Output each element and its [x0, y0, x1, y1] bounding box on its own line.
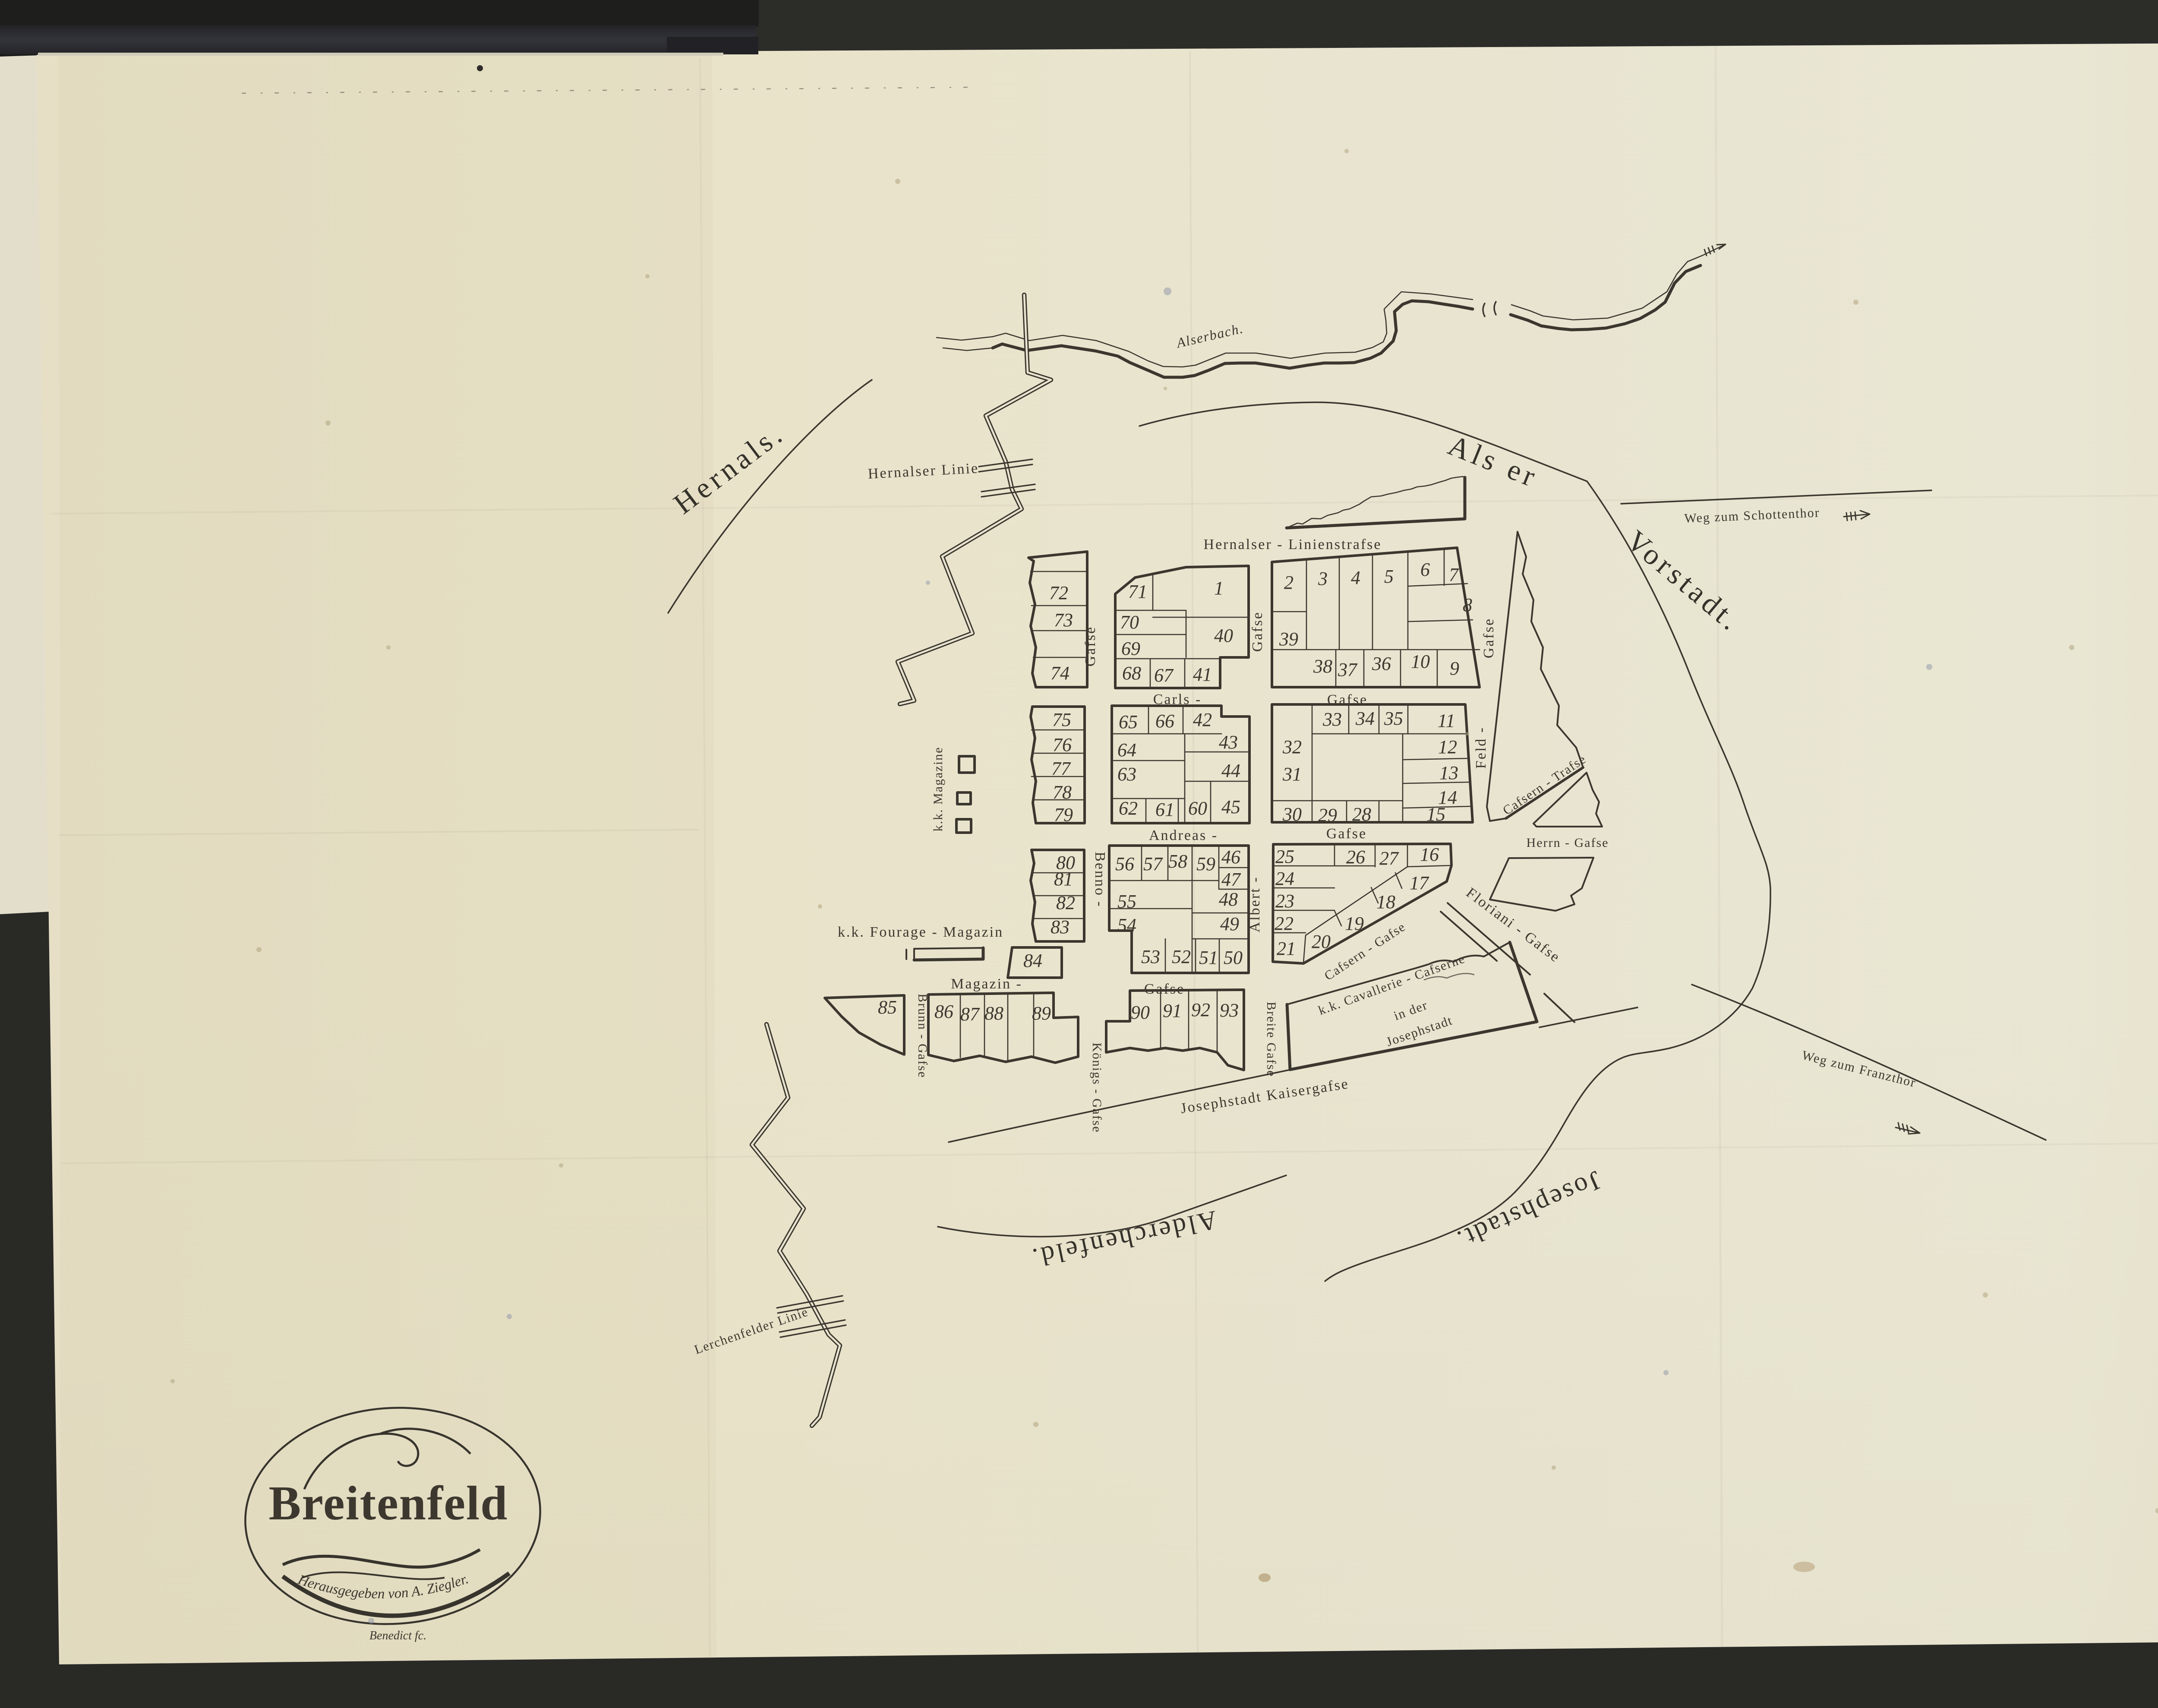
- svg-text:Carls -: Carls -: [1153, 691, 1202, 707]
- svg-text:52: 52: [1172, 946, 1191, 967]
- svg-text:Herrn - Gafse: Herrn - Gafse: [1527, 836, 1609, 850]
- svg-text:Hernalser - Linienstrafse: Hernalser - Linienstrafse: [1204, 537, 1382, 552]
- svg-text:6: 6: [1420, 559, 1430, 580]
- svg-text:54: 54: [1117, 915, 1136, 936]
- svg-text:78: 78: [1053, 782, 1072, 803]
- svg-text:61: 61: [1155, 799, 1174, 820]
- svg-text:58: 58: [1168, 851, 1187, 872]
- svg-text:79: 79: [1054, 804, 1073, 825]
- svg-text:56: 56: [1115, 853, 1134, 875]
- svg-text:17: 17: [1410, 872, 1429, 893]
- svg-text:53: 53: [1141, 946, 1160, 967]
- svg-text:18: 18: [1376, 891, 1395, 912]
- svg-text:41: 41: [1193, 664, 1212, 685]
- svg-text:3: 3: [1318, 568, 1328, 589]
- svg-text:32: 32: [1282, 736, 1302, 758]
- svg-text:Gafse: Gafse: [1144, 981, 1185, 997]
- svg-text:65: 65: [1119, 711, 1138, 732]
- svg-text:2: 2: [1284, 572, 1294, 593]
- svg-text:77: 77: [1051, 758, 1071, 779]
- svg-text:81: 81: [1054, 868, 1073, 890]
- svg-text:63: 63: [1117, 764, 1136, 785]
- svg-text:34: 34: [1355, 708, 1375, 729]
- svg-text:Gafse: Gafse: [1082, 626, 1098, 666]
- svg-text:Breitenfeld: Breitenfeld: [269, 1477, 508, 1530]
- svg-text:85: 85: [878, 997, 897, 1018]
- svg-text:39: 39: [1279, 628, 1298, 650]
- svg-text:44: 44: [1221, 760, 1240, 781]
- svg-text:86: 86: [934, 1001, 953, 1022]
- svg-text:7: 7: [1449, 564, 1459, 585]
- svg-text:Albert -: Albert -: [1247, 876, 1263, 933]
- svg-text:59: 59: [1196, 853, 1215, 875]
- svg-text:4: 4: [1351, 567, 1360, 588]
- svg-text:30: 30: [1282, 804, 1302, 825]
- svg-text:87: 87: [960, 1004, 980, 1025]
- svg-text:37: 37: [1338, 659, 1358, 680]
- svg-text:21: 21: [1277, 938, 1296, 959]
- svg-text:90: 90: [1131, 1002, 1150, 1023]
- svg-text:71: 71: [1128, 581, 1147, 602]
- svg-text:60: 60: [1188, 798, 1207, 819]
- svg-text:24: 24: [1275, 868, 1294, 889]
- svg-text:28: 28: [1352, 804, 1371, 825]
- svg-text:42: 42: [1193, 709, 1212, 730]
- svg-text:67: 67: [1154, 665, 1174, 686]
- svg-text:36: 36: [1372, 653, 1391, 674]
- svg-text:1: 1: [1214, 578, 1224, 599]
- svg-text:10: 10: [1411, 651, 1430, 672]
- svg-text:82: 82: [1056, 892, 1075, 913]
- svg-text:Benedict fc.: Benedict fc.: [369, 1629, 426, 1642]
- svg-text:Magazin -: Magazin -: [951, 976, 1022, 992]
- svg-text:27: 27: [1379, 848, 1399, 869]
- svg-text:25: 25: [1275, 846, 1294, 867]
- svg-text:38: 38: [1313, 656, 1332, 677]
- svg-text:57: 57: [1143, 853, 1163, 875]
- svg-text:Königs - Gafse: Königs - Gafse: [1090, 1042, 1104, 1133]
- svg-text:91: 91: [1163, 1000, 1182, 1021]
- svg-text:40: 40: [1214, 625, 1233, 646]
- svg-text:5: 5: [1384, 566, 1394, 587]
- svg-text:Benno -: Benno -: [1092, 852, 1108, 908]
- svg-text:23: 23: [1275, 890, 1294, 912]
- svg-text:16: 16: [1420, 844, 1439, 865]
- svg-text:Brunn - Gafse: Brunn - Gafse: [915, 994, 930, 1078]
- svg-text:26: 26: [1346, 846, 1365, 868]
- svg-text:66: 66: [1155, 710, 1174, 732]
- svg-text:62: 62: [1119, 798, 1138, 819]
- svg-text:15: 15: [1426, 804, 1445, 825]
- svg-text:47: 47: [1221, 869, 1241, 890]
- svg-text:19: 19: [1345, 913, 1364, 934]
- svg-text:76: 76: [1053, 734, 1072, 755]
- svg-text:49: 49: [1220, 913, 1239, 935]
- svg-text:Feld -: Feld -: [1473, 726, 1489, 769]
- svg-text:11: 11: [1438, 710, 1455, 731]
- svg-text:93: 93: [1220, 1000, 1239, 1021]
- svg-text:43: 43: [1219, 732, 1238, 753]
- svg-text:12: 12: [1438, 736, 1457, 758]
- svg-text:92: 92: [1191, 999, 1210, 1020]
- svg-text:k.k. Magazine: k.k. Magazine: [931, 747, 945, 832]
- svg-text:88: 88: [984, 1003, 1003, 1024]
- svg-text:84: 84: [1023, 950, 1042, 971]
- svg-text:55: 55: [1117, 891, 1136, 912]
- svg-text:68: 68: [1122, 663, 1141, 684]
- svg-text:k.k. Fourage - Magazin: k.k. Fourage - Magazin: [838, 924, 1003, 940]
- svg-text:13: 13: [1439, 762, 1458, 783]
- svg-text:73: 73: [1054, 609, 1073, 631]
- svg-text:51: 51: [1199, 947, 1218, 968]
- svg-text:Breite Gafse: Breite Gafse: [1264, 1002, 1278, 1077]
- svg-text:70: 70: [1120, 612, 1139, 633]
- svg-text:89: 89: [1032, 1003, 1051, 1024]
- svg-text:20: 20: [1312, 931, 1331, 952]
- svg-text:33: 33: [1322, 709, 1342, 730]
- svg-text:46: 46: [1221, 846, 1240, 868]
- svg-text:74: 74: [1051, 663, 1070, 684]
- svg-text:Andreas -: Andreas -: [1149, 827, 1218, 843]
- svg-text:50: 50: [1224, 947, 1243, 968]
- svg-text:64: 64: [1117, 739, 1136, 761]
- svg-text:Gafse: Gafse: [1249, 611, 1265, 652]
- svg-text:29: 29: [1318, 805, 1337, 826]
- svg-text:45: 45: [1221, 796, 1240, 818]
- svg-text:83: 83: [1051, 916, 1070, 938]
- svg-text:31: 31: [1282, 764, 1302, 785]
- svg-text:35: 35: [1384, 708, 1403, 729]
- svg-text:Gafse: Gafse: [1326, 826, 1367, 842]
- svg-text:69: 69: [1121, 638, 1140, 659]
- svg-text:72: 72: [1049, 582, 1068, 603]
- svg-text:22: 22: [1275, 913, 1294, 934]
- svg-text:9: 9: [1450, 658, 1459, 679]
- svg-text:48: 48: [1219, 889, 1238, 910]
- svg-text:75: 75: [1052, 709, 1071, 730]
- svg-text:Gafse: Gafse: [1327, 692, 1368, 708]
- svg-text:Gafse: Gafse: [1481, 618, 1497, 658]
- svg-text:8: 8: [1463, 594, 1472, 616]
